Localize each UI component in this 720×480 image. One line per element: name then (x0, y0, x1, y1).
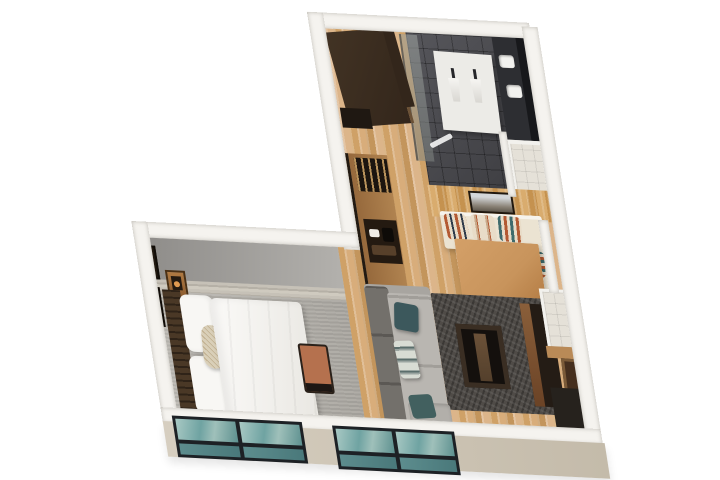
coffee-table-shelf (473, 333, 492, 381)
art-canvas (470, 193, 513, 213)
window-pane (335, 429, 394, 454)
fixture-arm (473, 69, 478, 79)
window-pane (340, 455, 398, 469)
window-pane (243, 447, 305, 461)
floor-plan-render (0, 0, 720, 480)
oblique-plan (0, 0, 720, 480)
window-pane (400, 458, 458, 472)
coffee-machine (381, 228, 394, 242)
fixture-arm (451, 68, 456, 78)
tray (371, 245, 397, 256)
window (172, 416, 309, 464)
throw-pillow (470, 214, 498, 241)
sofa-pillow-teal (394, 301, 419, 333)
coffee-cups (369, 229, 380, 237)
window (332, 426, 461, 476)
glassware-niche (354, 157, 392, 192)
throw-pillow (497, 215, 523, 243)
window-pane (175, 419, 238, 443)
closet-shelf (340, 108, 373, 129)
sink (506, 85, 523, 99)
window-pane (179, 443, 241, 457)
bench-front (306, 383, 333, 392)
window-pane (239, 422, 302, 446)
shower-partition (433, 51, 502, 134)
coffee-niche (363, 219, 403, 264)
lamp-glow (173, 281, 180, 287)
window-pane (395, 432, 454, 457)
sink (498, 55, 515, 69)
